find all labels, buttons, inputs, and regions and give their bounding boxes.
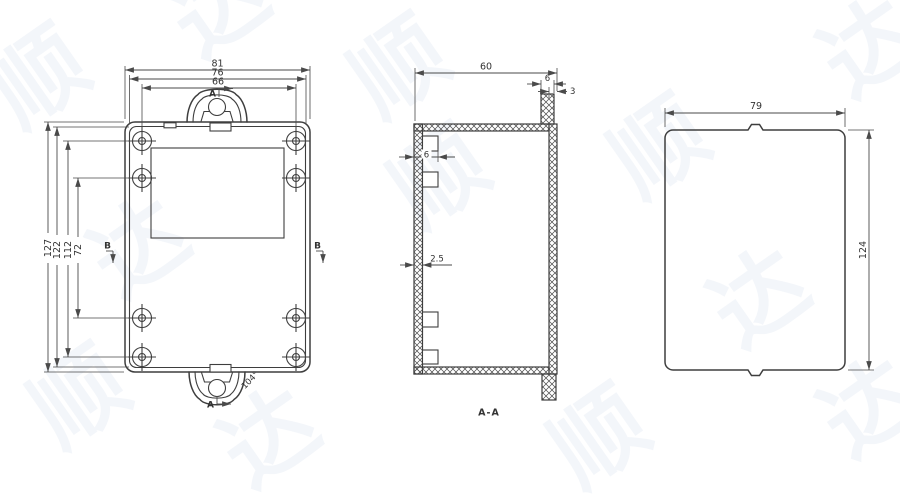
watermark-layer: 顺达顺达顺达顺达顺达顺达 — [0, 0, 900, 500]
section-dim-wall-thickness: 2.5 — [400, 255, 452, 266]
section-right-wall — [549, 124, 557, 374]
dim-label-66: 66 — [212, 77, 224, 88]
marker-label-b-right: B — [314, 242, 321, 252]
section-boss — [423, 312, 439, 327]
watermark-glyph: 达 — [801, 338, 900, 478]
watermark-glyph: 达 — [71, 178, 208, 318]
section-view: 60 6 3 6 2.5 A- — [399, 62, 575, 419]
watermark-glyph: 顺 — [591, 78, 728, 218]
section-boss — [423, 172, 439, 187]
dim-label-122: 122 — [52, 241, 63, 259]
marker-label-b-left: B — [104, 242, 111, 252]
dim-label-124: 124 — [858, 241, 869, 259]
drawing-canvas: 顺达顺达顺达顺达顺达顺达 — [0, 0, 900, 500]
dim-label-79: 79 — [750, 101, 762, 112]
dim-label-2point5: 2.5 — [430, 255, 444, 265]
dim-label-60: 60 — [480, 62, 492, 73]
section-dim-flange-width: 6 — [527, 74, 566, 93]
section-boss — [423, 350, 439, 364]
watermark-glyph: 达 — [801, 0, 900, 118]
screw-hole — [128, 127, 156, 155]
section-top-flange — [541, 94, 554, 124]
watermark-glyph: 达 — [691, 228, 828, 368]
side-dim-height: 124 — [848, 130, 874, 370]
front-bottom-tab-base — [210, 365, 231, 373]
front-top-edge-notch — [164, 123, 176, 128]
front-top-tab-hole — [209, 99, 226, 116]
marker-label-a-bottom: A — [207, 401, 214, 411]
section-left-wall — [414, 124, 423, 374]
section-label: A-A — [478, 408, 500, 419]
dim-label-3: 3 — [570, 87, 575, 97]
dim-label-6-flange: 6 — [545, 74, 550, 84]
section-top-wall — [414, 124, 549, 131]
marker-label-a-top: A — [209, 90, 216, 100]
technical-drawing-svg: 顺达顺达顺达顺达顺达顺达 — [0, 0, 900, 500]
dim-label-72: 72 — [73, 244, 84, 256]
front-bottom-tab-hole — [209, 380, 226, 397]
dim-label-6-boss: 6 — [424, 151, 429, 161]
watermark-glyph: 顺 — [11, 328, 148, 468]
section-bottom-flange — [542, 374, 556, 400]
section-bottom-wall — [414, 367, 549, 374]
section-marker-b-right: B — [314, 242, 323, 264]
section-boss — [423, 136, 439, 151]
screw-hole — [128, 343, 156, 371]
front-top-tab-base — [210, 123, 231, 131]
